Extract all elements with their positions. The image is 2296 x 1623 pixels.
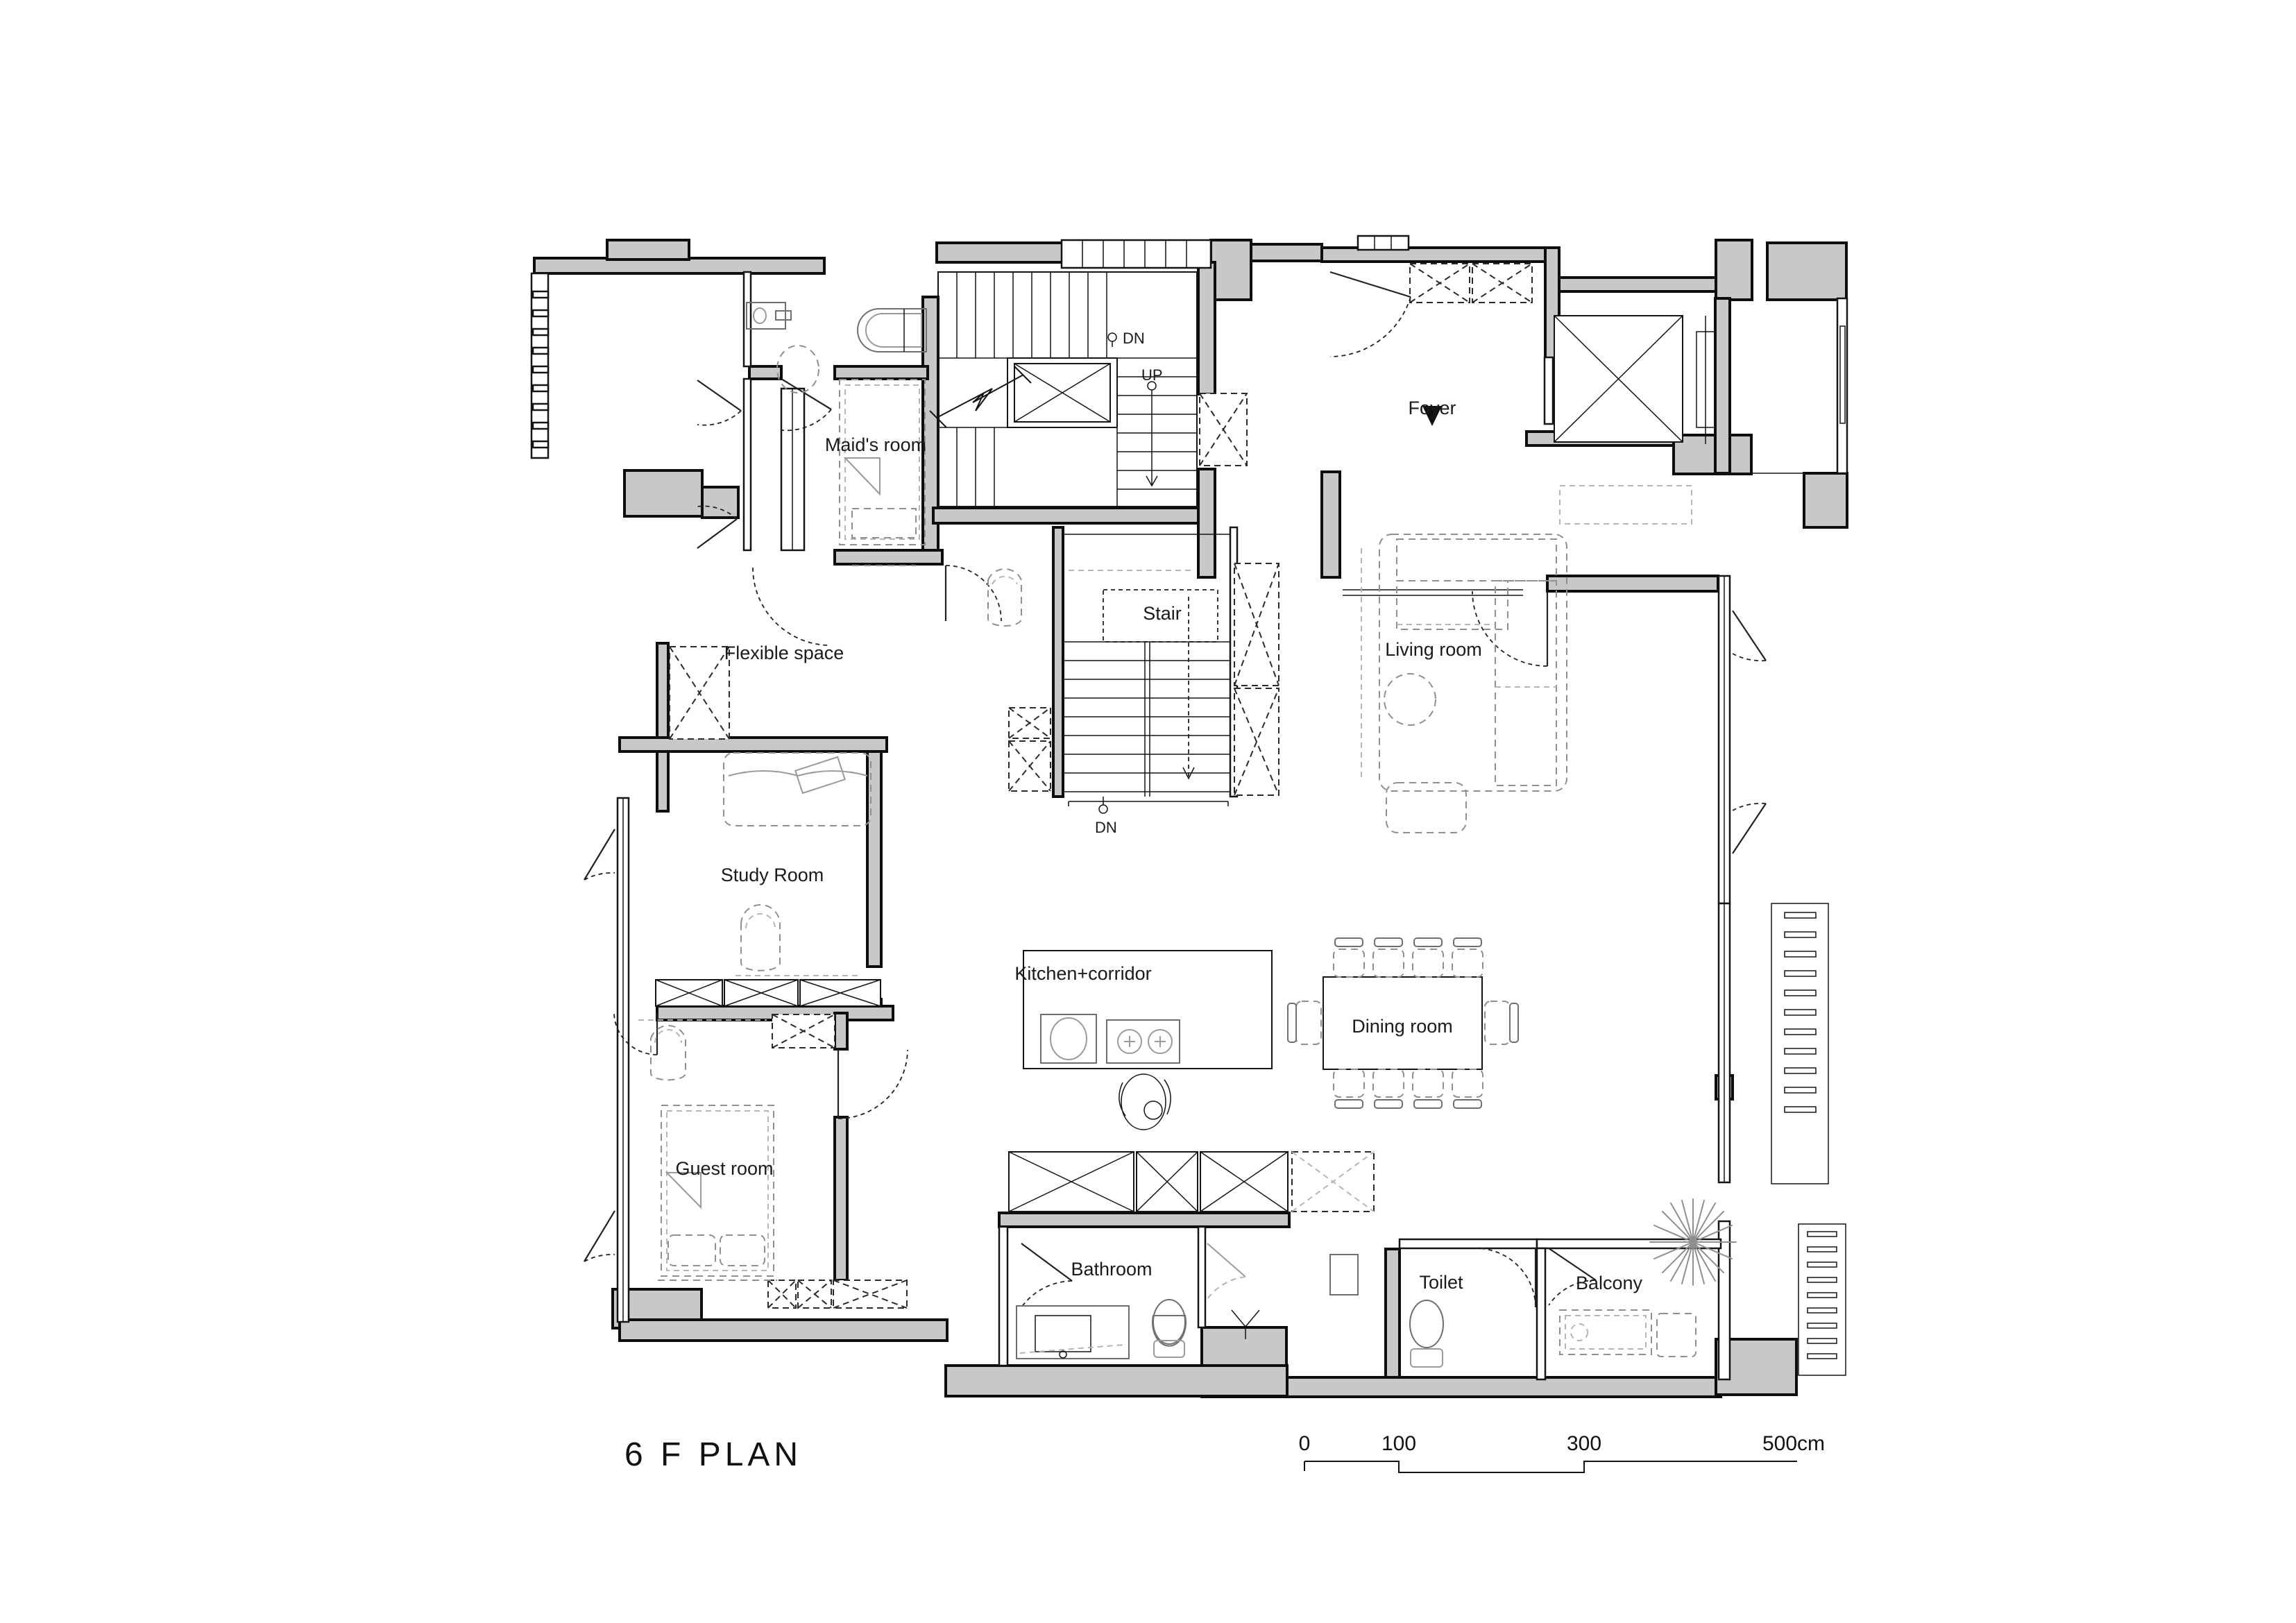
door-flexible — [753, 568, 831, 645]
elevator-door — [1545, 357, 1553, 424]
window-band-stair-top — [1062, 240, 1211, 268]
room-label-stair: Stair — [1143, 603, 1182, 624]
cabinet-guest-ne — [772, 1014, 835, 1048]
window-ne — [1837, 298, 1847, 473]
stair-dn-lower: DN — [1095, 819, 1117, 836]
scale-tick-100: 100 — [1381, 1432, 1416, 1455]
chair-guest — [651, 1026, 686, 1080]
scale-tick-500: 500cm — [1762, 1432, 1825, 1455]
chair-flexible — [988, 569, 1021, 626]
public-stairwell — [930, 272, 1197, 507]
room-label-toilet: Toilet — [1419, 1272, 1463, 1293]
person-figure — [1119, 1074, 1171, 1130]
toilet-nw — [747, 303, 791, 329]
scale-bar: 0 100 300 500cm — [1299, 1432, 1825, 1472]
column-stair-foyer — [1200, 393, 1247, 466]
bed-maid — [840, 380, 925, 566]
coffee-table — [1384, 674, 1436, 725]
daybed-study — [724, 753, 871, 826]
cabinet-corridor-row — [1009, 1152, 1374, 1212]
stool-maid — [777, 346, 819, 393]
ottoman — [1386, 783, 1466, 833]
room-label-flexible: Flexible space — [724, 643, 844, 663]
washer-balcony — [1560, 1310, 1696, 1357]
shoe-cabinet-foyer — [1560, 486, 1692, 524]
room-label-kitchen: Kitchen+corridor — [1014, 963, 1151, 984]
plan-title: 6 F PLAN — [624, 1436, 802, 1473]
room-label-dining: Dining room — [1352, 1016, 1453, 1037]
chair-study — [741, 905, 780, 971]
stair-dn-upper: DN — [1123, 330, 1145, 347]
room-label-study: Study Room — [721, 865, 824, 885]
louver-panel-lower — [1798, 1224, 1846, 1375]
door-bathroom — [1021, 1243, 1072, 1281]
cabinet-stair-east — [1234, 563, 1279, 795]
door-maid-corridor — [946, 566, 1001, 621]
stair-up: UP — [1141, 366, 1163, 384]
scale-tick-0: 0 — [1299, 1432, 1311, 1455]
room-label-foyer: Foyer — [1408, 398, 1456, 418]
plant — [1650, 1199, 1736, 1285]
room-label-balcony: Balcony — [1576, 1273, 1643, 1293]
window-band-foyer-top — [1358, 236, 1409, 250]
washbasin-wc — [1330, 1255, 1358, 1295]
door-foyer-entry — [1330, 272, 1411, 297]
scale-tick-300: 300 — [1567, 1432, 1601, 1455]
louver-panel — [1771, 903, 1828, 1184]
bathtub-maid — [858, 309, 926, 352]
cabinet-study-row — [656, 980, 881, 1006]
vanity-bathroom — [1017, 1306, 1129, 1359]
bed-guest — [658, 1105, 777, 1280]
room-label-guest: Guest room — [675, 1158, 773, 1179]
toilet-wc — [1410, 1300, 1443, 1367]
room-label-maid: Maid's room — [825, 434, 926, 455]
floor-plan-svg: Maid's room Foyer Stair Flexible space L… — [0, 0, 2296, 1623]
cabinet-flexible — [670, 647, 729, 739]
sofa-living — [1361, 534, 1567, 833]
room-label-living: Living room — [1385, 639, 1482, 660]
toilet-bathroom — [1153, 1300, 1186, 1357]
elevator — [1545, 316, 1715, 444]
cabinet-foyer-top — [1410, 264, 1532, 303]
room-label-bathroom: Bathroom — [1071, 1259, 1152, 1280]
cabinet-stair-west — [1009, 708, 1051, 791]
cabinet-guest-bottom — [768, 1280, 907, 1308]
